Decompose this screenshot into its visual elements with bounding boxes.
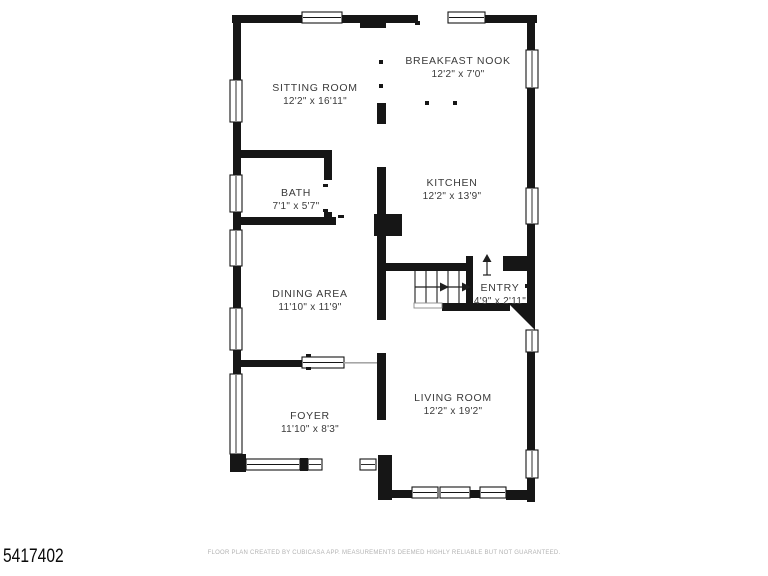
room-dims: 4'9" x 2'11" — [474, 295, 526, 308]
window-symbol — [480, 487, 506, 498]
window-symbol — [230, 230, 242, 266]
room-dims: 12'2" x 13'9" — [423, 190, 482, 203]
window-symbol — [230, 308, 242, 350]
room-name: SITTING ROOM — [272, 82, 357, 95]
room-label-kitchen: KITCHEN 12'2" x 13'9" — [423, 177, 482, 203]
room-label-dining-area: DINING AREA 11'10" x 11'9" — [272, 288, 347, 314]
floor-plan-drawing — [0, 0, 768, 576]
room-name: FOYER — [281, 410, 339, 423]
window-symbol — [246, 459, 300, 470]
room-label-entry: ENTRY 4'9" x 2'11" — [474, 282, 526, 308]
window-symbol — [448, 12, 485, 23]
room-name: BREAKFAST NOOK — [405, 55, 510, 68]
window-symbol — [308, 459, 322, 470]
room-name: BATH — [272, 187, 319, 200]
window-symbol — [526, 450, 538, 478]
room-label-bath: BATH 7'1" x 5'7" — [272, 187, 319, 213]
listing-id: 5417402 — [3, 546, 64, 568]
room-dims: 12'2" x 7'0" — [405, 68, 510, 81]
room-label-living-room: LIVING ROOM 12'2" x 19'2" — [414, 392, 492, 418]
room-label-foyer: FOYER 11'10" x 8'3" — [281, 410, 339, 436]
up-arrow-icon — [483, 254, 492, 275]
window-symbol — [526, 330, 538, 352]
room-dims: 12'2" x 16'11" — [272, 95, 357, 108]
window-symbol — [360, 459, 376, 470]
room-dims: 11'10" x 11'9" — [272, 301, 347, 314]
room-dims: 7'1" x 5'7" — [272, 200, 319, 213]
footer-disclaimer: FLOOR PLAN CREATED BY CUBICASA APP. MEAS… — [208, 550, 561, 556]
window-symbol — [526, 188, 538, 224]
window-symbol — [526, 50, 538, 88]
room-dims: 12'2" x 19'2" — [414, 405, 492, 418]
room-name: DINING AREA — [272, 288, 347, 301]
room-name: LIVING ROOM — [414, 392, 492, 405]
window-symbol — [230, 80, 242, 122]
window-symbol — [440, 487, 470, 498]
floor-plan-page: SITTING ROOM 12'2" x 16'11" BREAKFAST NO… — [0, 0, 768, 576]
window-symbol — [412, 487, 438, 498]
window-symbol — [302, 12, 342, 23]
window-symbol — [302, 357, 344, 368]
room-label-breakfast-nook: BREAKFAST NOOK 12'2" x 7'0" — [405, 55, 510, 81]
room-name: KITCHEN — [423, 177, 482, 190]
window-symbol — [230, 175, 242, 212]
stairs-icon — [414, 271, 459, 308]
window-symbol — [230, 374, 242, 454]
room-name: ENTRY — [474, 282, 526, 295]
room-label-sitting-room: SITTING ROOM 12'2" x 16'11" — [272, 82, 357, 108]
right-arrow-icon — [415, 283, 471, 292]
room-dims: 11'10" x 8'3" — [281, 423, 339, 436]
